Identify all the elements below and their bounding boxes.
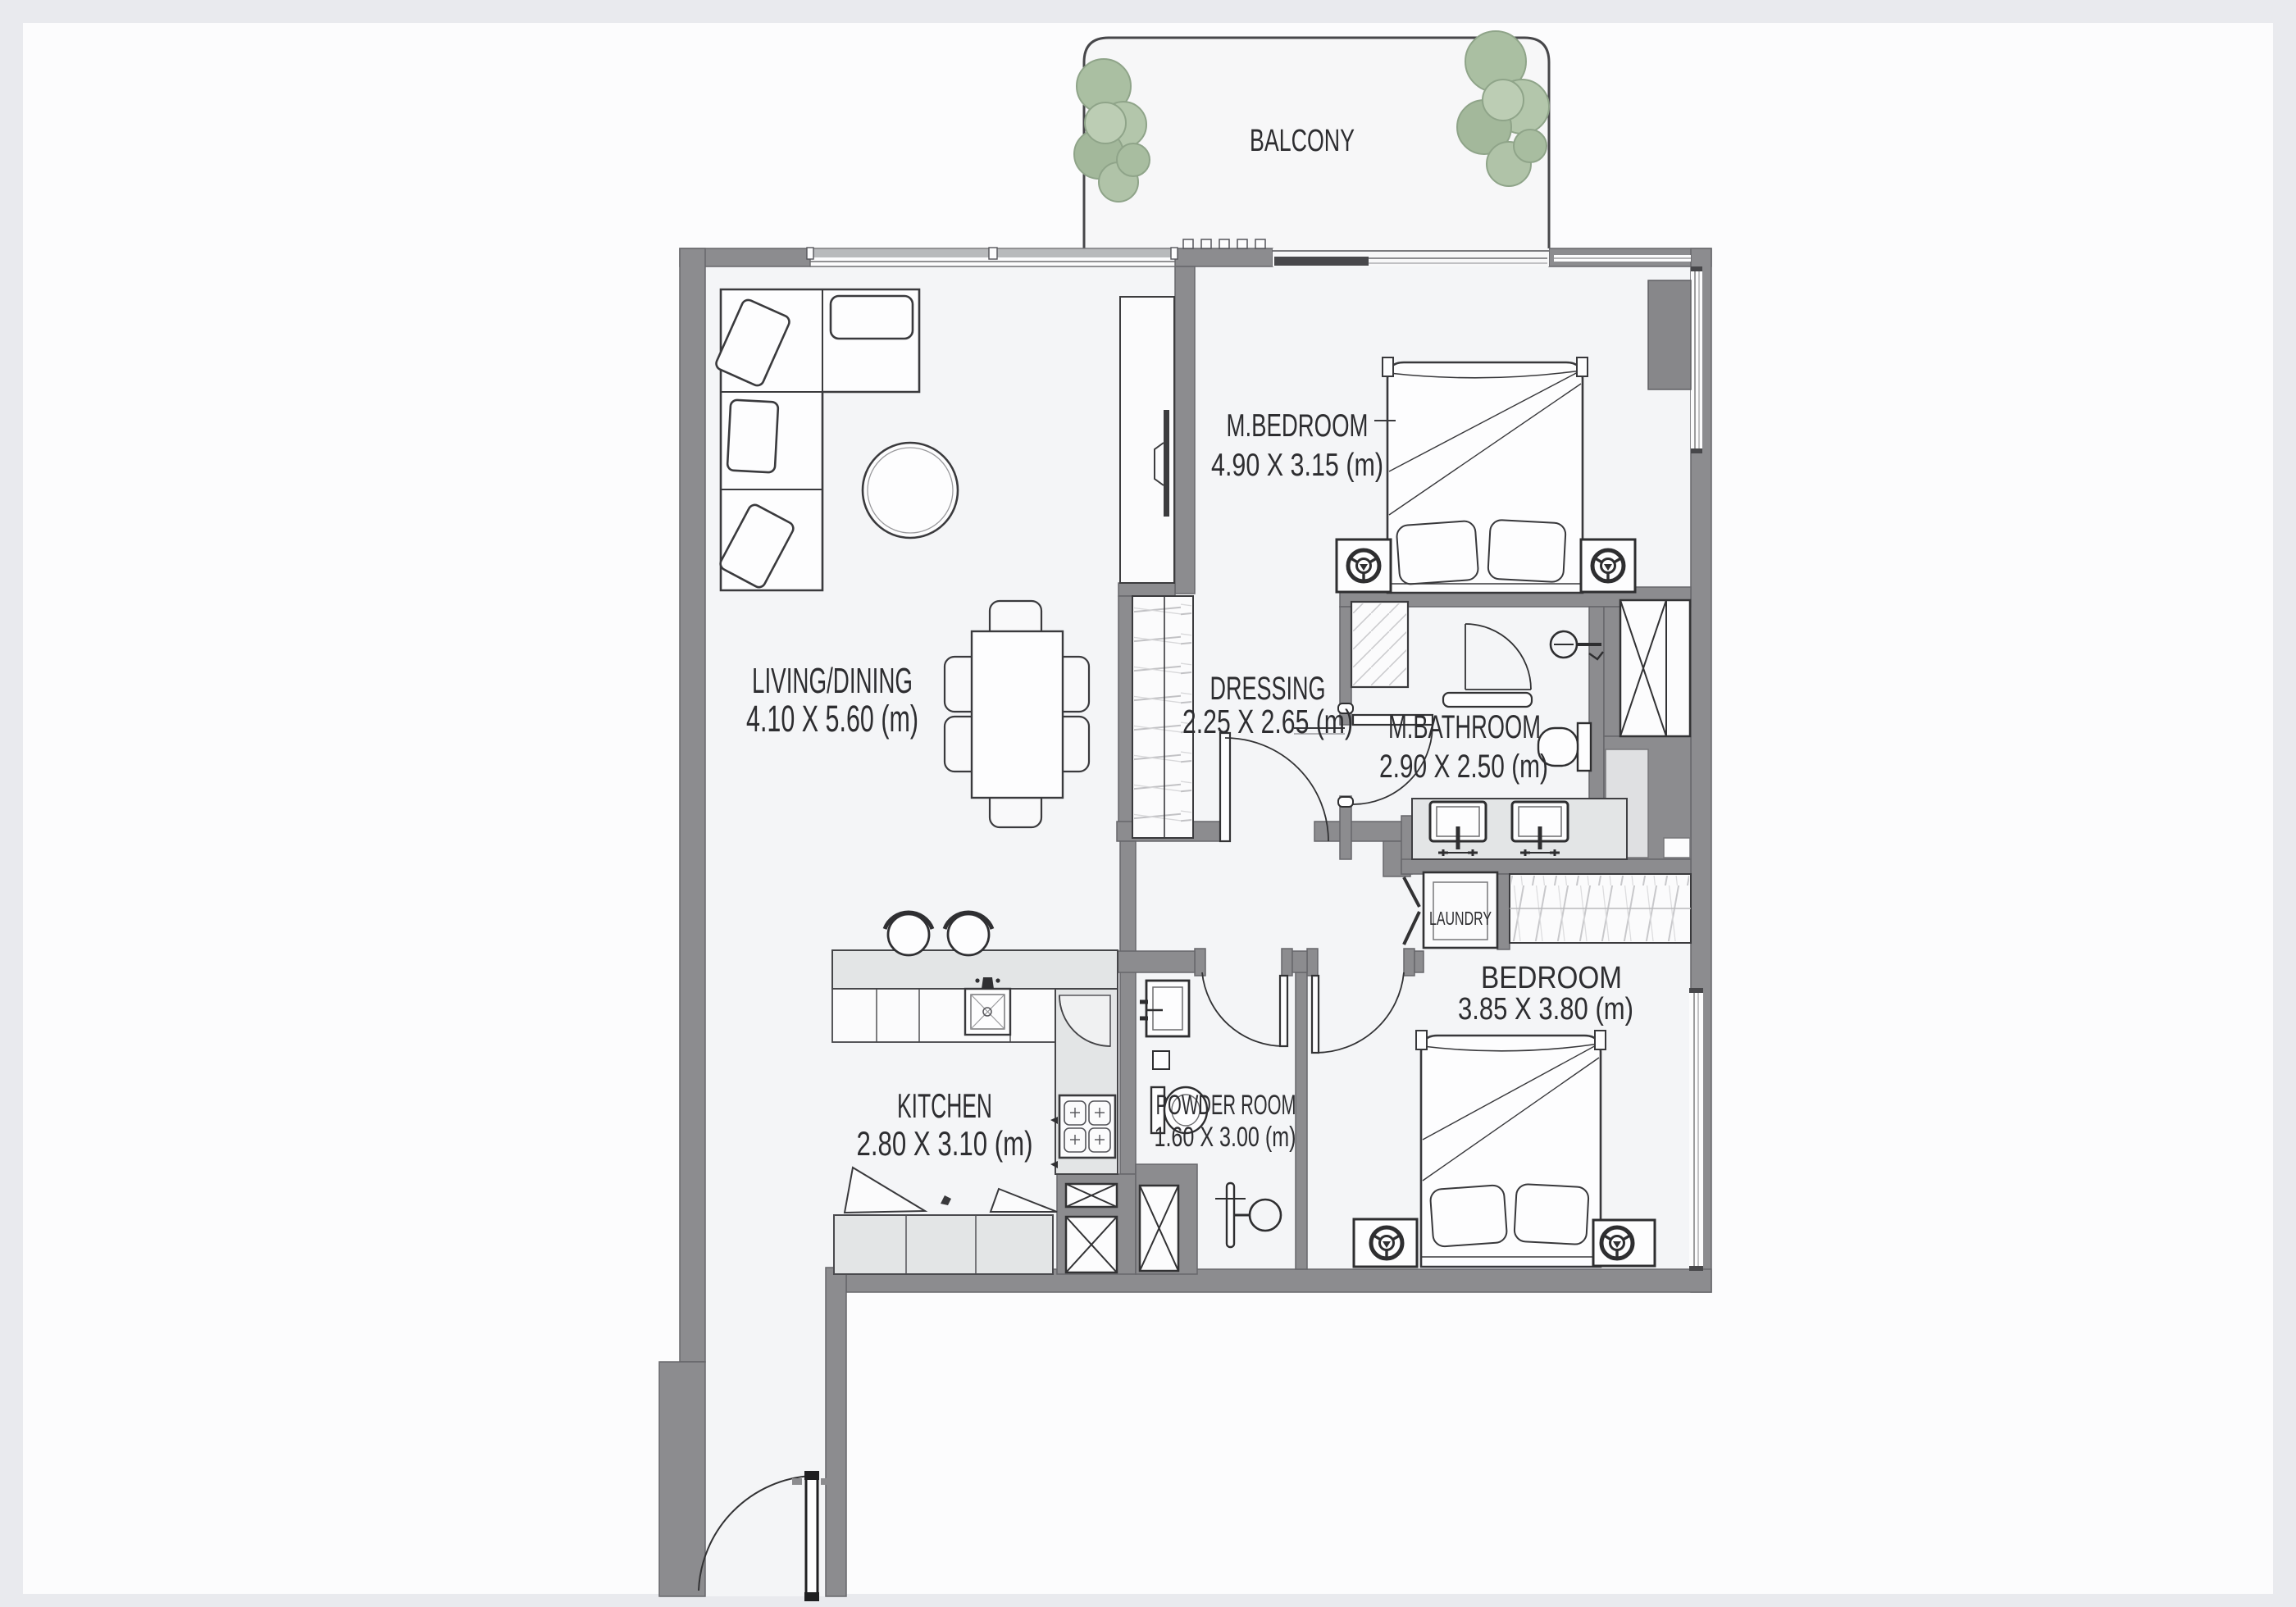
svg-text:1.60 X 3.00 (m): 1.60 X 3.00 (m) xyxy=(1155,1122,1296,1153)
svg-text:BALCONY: BALCONY xyxy=(1250,124,1355,158)
svg-text:BEDROOM: BEDROOM xyxy=(1481,961,1622,995)
svg-text:2.25 X 2.65 (m): 2.25 X 2.65 (m) xyxy=(1182,703,1353,740)
svg-text:2.90 X 2.50 (m): 2.90 X 2.50 (m) xyxy=(1379,749,1548,785)
svg-text:POWDER ROOM: POWDER ROOM xyxy=(1156,1090,1296,1121)
svg-text:LAUNDRY: LAUNDRY xyxy=(1429,908,1492,929)
svg-text:DRESSING: DRESSING xyxy=(1210,671,1326,707)
svg-text:2.80 X 3.10 (m): 2.80 X 3.10 (m) xyxy=(857,1124,1033,1163)
svg-text:3.85 X 3.80 (m): 3.85 X 3.80 (m) xyxy=(1458,992,1633,1027)
svg-text:4.90 X 3.15 (m): 4.90 X 3.15 (m) xyxy=(1211,448,1383,483)
svg-text:M.BATHROOM: M.BATHROOM xyxy=(1388,709,1541,745)
svg-text:M.BEDROOM: M.BEDROOM xyxy=(1227,408,1369,444)
svg-text:KITCHEN: KITCHEN xyxy=(897,1086,992,1125)
svg-text:4.10 X 5.60 (m): 4.10 X 5.60 (m) xyxy=(746,698,918,740)
svg-text:LIVING/DINING: LIVING/DINING xyxy=(752,661,913,701)
